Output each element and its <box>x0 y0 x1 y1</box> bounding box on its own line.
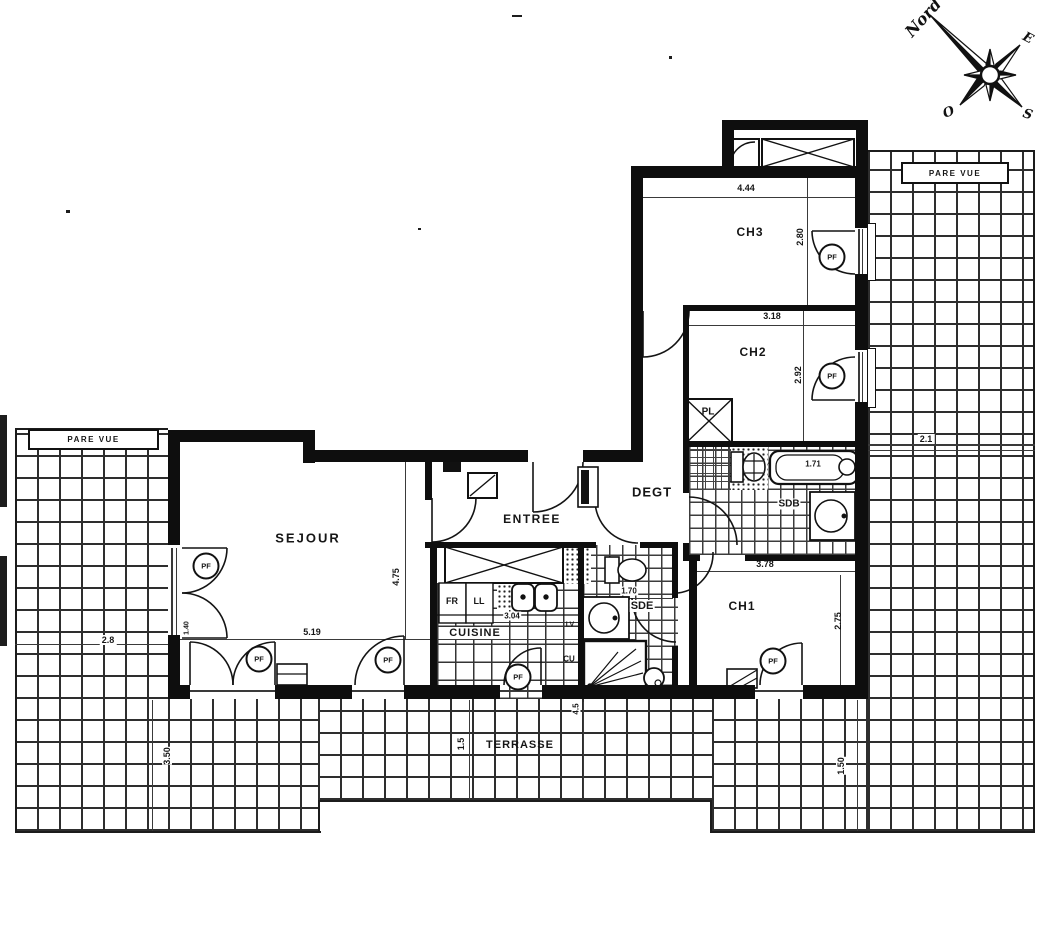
wall-ch2-sdb <box>689 441 855 447</box>
appliance-label-water-heater: CU <box>563 655 575 664</box>
room-label-sdb: SDB <box>777 499 800 510</box>
wall-shaft-bottom <box>722 166 868 178</box>
wall-east-2 <box>855 274 868 350</box>
window-glazing-east-ch3-2 <box>862 229 863 274</box>
room-label-degt: DEGT <box>632 485 672 500</box>
compass-west-label: O <box>941 103 958 121</box>
wall-entree-top-left <box>315 450 528 462</box>
dim-ch1-width: 3.78 <box>756 559 774 569</box>
window-glazing-east-ch2 <box>858 352 860 402</box>
dim-ch2-width: 3.18 <box>763 311 781 321</box>
wall-wing-left <box>631 166 643 462</box>
wall-sde-right-upper <box>672 545 678 598</box>
wall-east-3 <box>855 402 868 699</box>
room-label-ch3: CH3 <box>736 225 763 239</box>
window-glazing-west <box>171 548 173 635</box>
appliance-label-dishwasher: LV <box>566 622 574 629</box>
terrace-label: TERRASSE <box>486 739 554 751</box>
wall-ch2-left <box>683 305 689 445</box>
compass-south-label: S <box>1021 106 1035 123</box>
dim-terrace-right-width: 2.1 <box>918 434 935 444</box>
room-label-ch1: CH1 <box>728 599 755 613</box>
wall-entree-bottom-a <box>425 542 596 548</box>
pf-label: PF <box>827 253 837 262</box>
room-label-sejour: SEJOUR <box>275 531 340 546</box>
dim-terrace-right-bottom: 1.50 <box>836 757 846 775</box>
pf-marker-sejour-south-1: PF <box>246 646 273 673</box>
dim-sejour-step: 1.40 <box>184 621 191 635</box>
dim-cuisine-width: 3.04 <box>503 612 521 621</box>
wall-east-1 <box>855 170 868 228</box>
dim-terrace-left-width: 2.8 <box>100 635 117 645</box>
dim-sejour-width: 5.19 <box>303 627 321 637</box>
wall-sde-right-lower <box>672 646 678 699</box>
wall-cuisine-left <box>430 548 437 699</box>
room-label-cuisine: CUISINE <box>447 627 503 639</box>
dim-ch3-width: 4.44 <box>737 183 755 193</box>
pf-marker-ch1: PF <box>760 648 787 675</box>
wall-step <box>303 430 315 463</box>
door-swing-and-fixture-drawing <box>0 0 1053 938</box>
dim-sde-width: 1.70 <box>620 587 638 596</box>
dim-bathtub: 1.71 <box>805 460 821 469</box>
pf-label: PF <box>768 657 778 666</box>
dim-terrace-bottom-depth: 1.5 <box>456 738 466 751</box>
pf-label: PF <box>201 562 211 571</box>
pf-label: PF <box>383 656 393 665</box>
wall-shaft-top <box>722 120 868 130</box>
pf-label: PF <box>827 372 837 381</box>
dim-ch1-height: 2.75 <box>833 612 843 630</box>
wall-sejour-entree <box>425 460 432 500</box>
dim-ch2-height: 2.92 <box>793 366 803 384</box>
room-label-pl: PL <box>702 407 715 418</box>
pf-marker-sejour-south-2: PF <box>375 647 402 674</box>
pare-vue-screen-left: PARE VUE <box>28 429 159 450</box>
window-glazing-west-2 <box>176 548 177 635</box>
compass-rose: Nord E S O <box>895 0 1053 128</box>
pf-marker-ch2: PF <box>819 363 846 390</box>
window-glazing-east-ch2-2 <box>862 352 863 402</box>
dim-terrace-left-depth: 3.50 <box>162 747 172 765</box>
wall-south-1 <box>168 685 190 699</box>
shutter-panel-ch3 <box>867 223 876 281</box>
room-label-ch2: CH2 <box>739 345 766 359</box>
pare-vue-screen-right: PARE VUE <box>901 162 1009 184</box>
wall-ch3-top <box>631 166 722 178</box>
floor-plan: PARE VUE PARE VUE SEJOUR ENTREE CUISINE … <box>0 0 1053 938</box>
wall-cuisine-sde <box>578 548 584 699</box>
wall-south-4 <box>542 685 755 699</box>
window-glazing-south-2 <box>352 690 404 692</box>
pare-vue-left-label: PARE VUE <box>67 435 119 444</box>
shutter-panel-ch2 <box>867 348 876 408</box>
dim-kitchen-step: 4.5 <box>572 703 581 714</box>
dim-sejour-height: 4.75 <box>391 568 401 586</box>
compass-north-label: Nord <box>900 0 945 41</box>
wall-west-upper <box>168 430 180 545</box>
window-glazing-east-ch3 <box>858 229 860 274</box>
pf-label: PF <box>254 655 264 664</box>
wall-ch1-left <box>689 561 697 699</box>
window-glazing-south-1 <box>190 690 275 692</box>
pf-marker-sejour-west: PF <box>193 553 220 580</box>
wall-south-2 <box>275 685 352 699</box>
window-glazing-south-4 <box>755 690 803 692</box>
appliance-label-washer: LL <box>474 596 485 606</box>
pf-marker-cuisine: PF <box>505 664 532 691</box>
dim-ch3-height: 2.80 <box>795 228 805 246</box>
pf-label: PF <box>513 673 523 682</box>
pf-marker-ch3: PF <box>819 244 846 271</box>
window-glazing-south-3 <box>500 690 542 692</box>
appliance-label-fridge: FR <box>446 596 458 606</box>
wall-sdb-left-upper <box>683 441 689 493</box>
pare-vue-right-label: PARE VUE <box>929 169 981 178</box>
compass-east-label: E <box>1019 29 1037 48</box>
room-label-sde: SDE <box>630 600 655 612</box>
wall-sejour-top <box>168 430 315 442</box>
room-label-entree: ENTREE <box>503 512 561 526</box>
wall-south-3 <box>404 685 500 699</box>
